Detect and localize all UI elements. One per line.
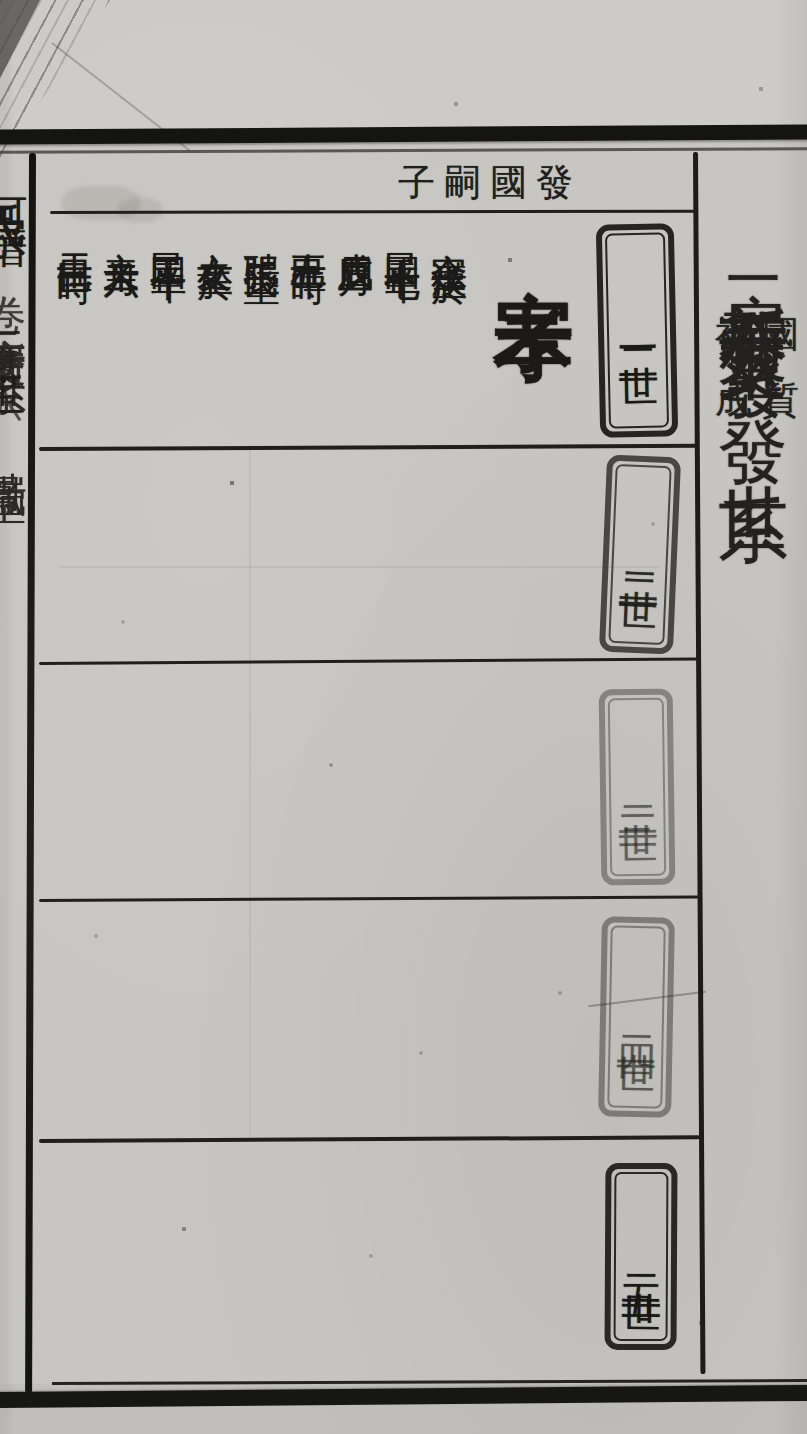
generation-box-24: 二四世: [598, 916, 675, 1117]
spine-book-title: 何氏宗譜: [0, 158, 30, 194]
entry-text-column: 字金漢生於: [425, 224, 472, 456]
generation-box-inner-border: 二四世: [607, 925, 665, 1108]
entry-text-column: 戊辰四月二: [332, 224, 379, 456]
small-pair-right-char: 國: [762, 316, 799, 353]
branch-title-small-pair: 成質: [710, 376, 804, 424]
generation-label: 二五世: [621, 1246, 661, 1267]
bottom-border-thin-line: [52, 1379, 807, 1385]
generation-box-23: 二三世: [599, 688, 676, 885]
generation-label: 二一世: [617, 320, 657, 342]
small-pair-right-char: 質: [762, 382, 799, 419]
branch-title-text: 世系: [715, 428, 792, 448]
ancestor-entry: 宗孝 字金漢生於 民國十七年 戊辰四月二 十五巳午時 聘張氏玉堂 之女生於 民國…: [46, 224, 586, 456]
entry-text-column: 民國十七年: [378, 224, 425, 456]
dust-specks: [0, 0, 2, 2]
entry-text-column: 十二日巳時: [51, 224, 98, 456]
branch-title-small-pair: 祥國: [710, 310, 804, 358]
entry-text-column: 民國二十年: [144, 224, 191, 456]
generation-box-inner-border: 二二世: [608, 464, 671, 645]
branch-title-text: 二房新春公支下發: [715, 226, 792, 306]
genealogy-scan-page: 何氏宗譜 卷 二房新春公支下 發祥 世系 五六 瑞鳳堂 子嗣國發 宗孝 字金漢生…: [0, 0, 807, 1434]
generation-label: 二二世: [620, 543, 661, 566]
branch-title-text: 發: [715, 362, 792, 372]
generation-label: 二四世: [616, 1006, 656, 1028]
entry-text-column: 聘張氏玉堂: [238, 224, 285, 456]
bottom-border-bar: [0, 1385, 807, 1408]
top-border-bar: [0, 125, 807, 145]
ancestor-name: 宗孝: [482, 224, 586, 456]
spine-section-title: 二房新春公支下: [0, 302, 28, 316]
entry-text-column: 十五巳午時: [285, 224, 332, 456]
generation-box-21: 二一世: [596, 223, 678, 438]
entry-text-column: 之女生於: [191, 224, 238, 456]
spine-column: 何氏宗譜 卷 二房新春公支下 發祥 世系 五六 瑞鳳堂: [0, 158, 32, 1388]
paper-fold: [60, 566, 660, 568]
generation-box-inner-border: 二三世: [608, 698, 666, 877]
generation-box-inner-border: 二一世: [605, 232, 669, 428]
header-separator-line: [50, 210, 698, 215]
row-separator-line: [39, 657, 699, 665]
row-separator-line: [39, 1135, 700, 1142]
paper-fold: [249, 445, 251, 1135]
small-pair-left-char: 成: [715, 382, 752, 419]
spine-hall-name: 瑞鳳堂: [0, 438, 29, 450]
generation-box-inner-border: 二五世: [614, 1172, 669, 1341]
spine-section-small-text: 發祥: [0, 326, 19, 330]
branch-title-column: 二房新春公支下發 祥國 發 成質 世系: [704, 226, 804, 1226]
small-pair-left-char: 祥: [715, 316, 752, 353]
generation-box-22: 二二世: [599, 455, 681, 655]
generation-label: 二三世: [617, 776, 657, 798]
row-separator-line: [39, 896, 699, 903]
entry-text-column: 辛未六月二: [98, 224, 145, 456]
heir-header-text: 子嗣國發: [398, 158, 598, 206]
top-border-thin-line: [0, 147, 807, 153]
generation-box-25: 二五世: [605, 1163, 678, 1350]
